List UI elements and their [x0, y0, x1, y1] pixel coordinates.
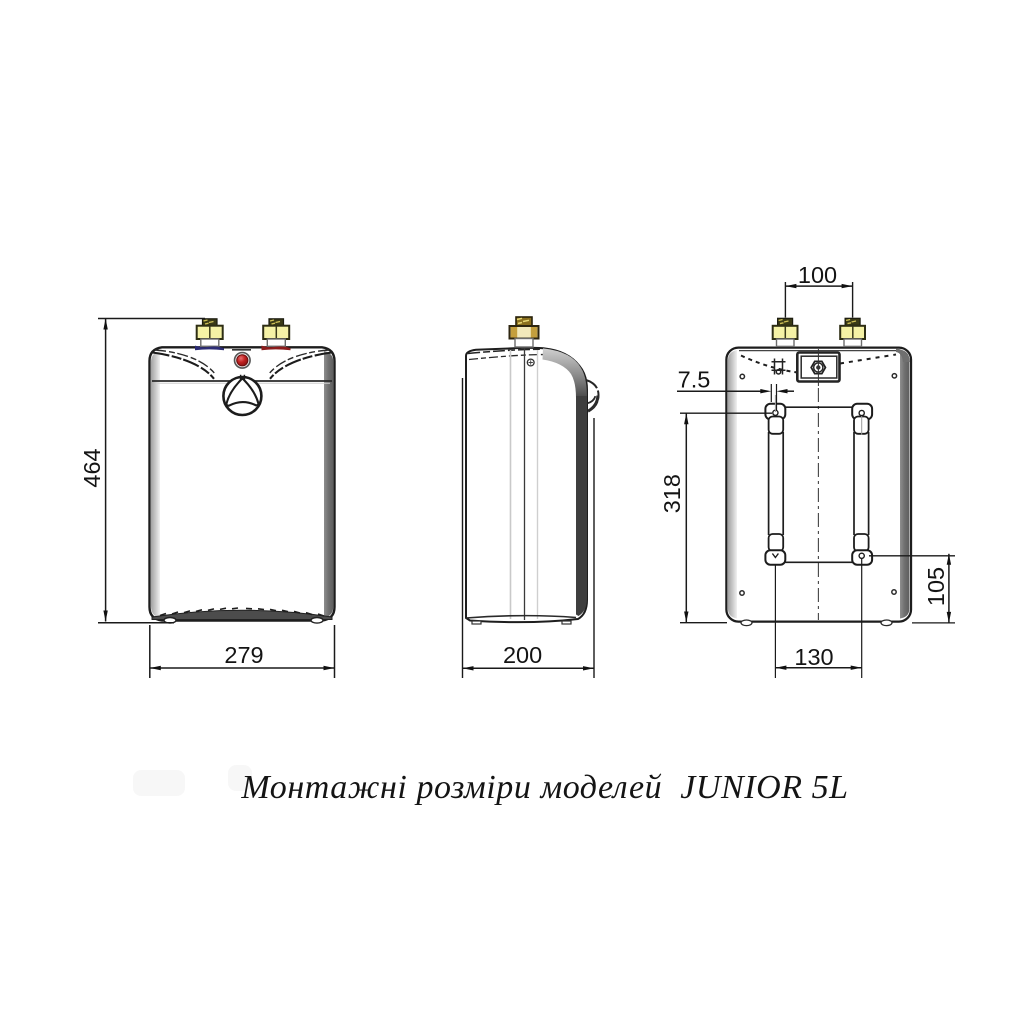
svg-text:279: 279: [224, 642, 263, 668]
svg-text:464: 464: [79, 448, 105, 487]
svg-text:105: 105: [923, 567, 949, 606]
svg-text:100: 100: [798, 262, 837, 288]
svg-text:7.5: 7.5: [678, 367, 711, 393]
svg-text:318: 318: [659, 474, 685, 513]
svg-text:200: 200: [503, 642, 542, 668]
svg-text:130: 130: [794, 644, 833, 670]
svg-text:Монтажні розміри моделей JUNI: Монтажні розміри моделей JUNIOR 5L: [240, 769, 848, 806]
